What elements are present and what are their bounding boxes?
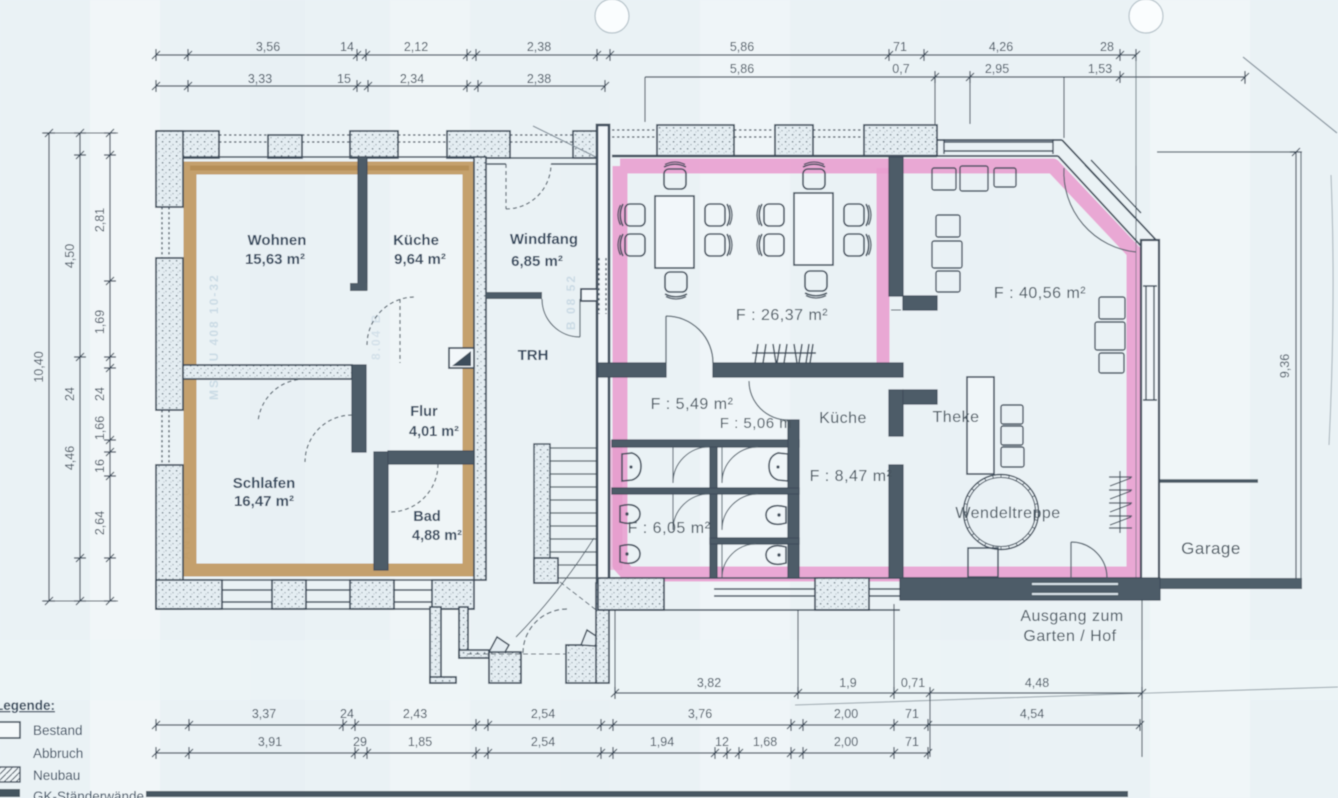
svg-text:14: 14 [340, 40, 354, 54]
svg-text:2,54: 2,54 [531, 735, 555, 749]
svg-text:F : 5,49 m²: F : 5,49 m² [651, 396, 734, 413]
svg-text:24: 24 [340, 707, 354, 721]
svg-text:Legende:: Legende: [0, 698, 55, 713]
svg-text:1,53: 1,53 [1088, 62, 1112, 76]
svg-text:4,46: 4,46 [63, 446, 77, 470]
svg-text:3,33: 3,33 [248, 72, 272, 86]
svg-text:12: 12 [715, 735, 729, 749]
svg-text:24: 24 [63, 387, 77, 401]
svg-text:0,71: 0,71 [901, 676, 925, 690]
svg-text:Küche: Küche [819, 410, 867, 427]
svg-text:16: 16 [93, 459, 107, 473]
svg-text:16,47 m²: 16,47 m² [234, 493, 294, 510]
svg-text:Theke: Theke [933, 409, 980, 426]
svg-text:71: 71 [905, 707, 919, 721]
svg-text:Küche: Küche [393, 232, 439, 249]
svg-text:2,38: 2,38 [527, 40, 551, 54]
svg-text:5,86: 5,86 [730, 40, 754, 54]
svg-text:MS-BU 408 10-32: MS-BU 408 10-32 [207, 273, 221, 400]
svg-text:4,88 m²: 4,88 m² [412, 528, 462, 544]
svg-text:Garage: Garage [1181, 539, 1241, 558]
svg-text:4,26: 4,26 [989, 40, 1013, 54]
svg-text:2,64: 2,64 [93, 511, 107, 535]
svg-text:24: 24 [93, 387, 107, 401]
svg-text:2,54: 2,54 [531, 707, 555, 721]
svg-text:3,56: 3,56 [256, 40, 280, 54]
svg-text:2,00: 2,00 [834, 735, 858, 749]
svg-text:3,82: 3,82 [697, 676, 721, 690]
svg-text:0,7: 0,7 [892, 62, 909, 76]
svg-text:2,00: 2,00 [834, 707, 858, 721]
svg-text:4,50: 4,50 [63, 244, 77, 268]
svg-text:9,64 m²: 9,64 m² [394, 251, 446, 268]
svg-text:10,40: 10,40 [32, 351, 46, 382]
svg-text:Windfang: Windfang [510, 231, 578, 248]
svg-text:Flur: Flur [410, 404, 438, 420]
svg-text:1,94: 1,94 [650, 735, 674, 749]
svg-text:Wohnen: Wohnen [248, 232, 307, 249]
svg-text:2,12: 2,12 [404, 40, 428, 54]
svg-text:6,85 m²: 6,85 m² [511, 253, 563, 270]
svg-text:1,66: 1,66 [93, 416, 107, 440]
svg-text:1,9: 1,9 [839, 676, 856, 690]
svg-text:2,95: 2,95 [985, 62, 1009, 76]
svg-text:Schlafen: Schlafen [233, 475, 296, 492]
svg-text:GK-Ständerwände: GK-Ständerwände [33, 789, 144, 798]
svg-text:4,01 m²: 4,01 m² [409, 424, 459, 440]
svg-text:4,54: 4,54 [1020, 707, 1044, 721]
svg-text:2,34: 2,34 [400, 72, 424, 86]
svg-text:Garten / Hof: Garten / Hof [1023, 628, 1116, 645]
svg-text:2,43: 2,43 [403, 707, 427, 721]
svg-text:TRH: TRH [518, 347, 549, 364]
svg-text:1,69: 1,69 [93, 310, 107, 334]
svg-text:Neubau: Neubau [33, 768, 80, 783]
svg-text:F : 6,05 m²: F : 6,05 m² [628, 520, 711, 537]
svg-text:2,81: 2,81 [93, 208, 107, 232]
svg-text:15,63 m²: 15,63 m² [245, 251, 305, 268]
svg-text:28: 28 [1100, 40, 1114, 54]
svg-text:8.04 B: 8.04 B [369, 313, 383, 360]
svg-text:Bestand: Bestand [33, 723, 83, 738]
svg-text:1,85: 1,85 [408, 735, 432, 749]
svg-text:Bad: Bad [413, 509, 440, 525]
svg-text:71: 71 [893, 40, 907, 54]
svg-text:F : 5,06 m: F : 5,06 m [720, 415, 793, 432]
svg-text:B 08 52: B 08 52 [564, 274, 578, 330]
svg-text:9,36: 9,36 [1278, 354, 1292, 378]
svg-text:Abbruch: Abbruch [33, 746, 83, 761]
svg-text:29: 29 [353, 735, 367, 749]
svg-text:15: 15 [337, 72, 351, 86]
svg-text:1,68: 1,68 [753, 735, 777, 749]
svg-text:5,86: 5,86 [730, 62, 754, 76]
svg-text:Wendeltreppe: Wendeltreppe [955, 505, 1060, 522]
svg-text:4,48: 4,48 [1025, 676, 1049, 690]
svg-text:3,37: 3,37 [252, 707, 276, 721]
svg-text:3,76: 3,76 [688, 707, 712, 721]
svg-text:F : 40,56 m²: F : 40,56 m² [994, 285, 1086, 302]
svg-text:3,91: 3,91 [258, 735, 282, 749]
svg-text:F : 8,47 m²: F : 8,47 m² [810, 468, 893, 485]
svg-text:2,38: 2,38 [527, 72, 551, 86]
svg-text:71: 71 [905, 735, 919, 749]
svg-text:F : 26,37 m²: F : 26,37 m² [736, 307, 828, 324]
svg-text:Ausgang zum: Ausgang zum [1020, 608, 1123, 625]
